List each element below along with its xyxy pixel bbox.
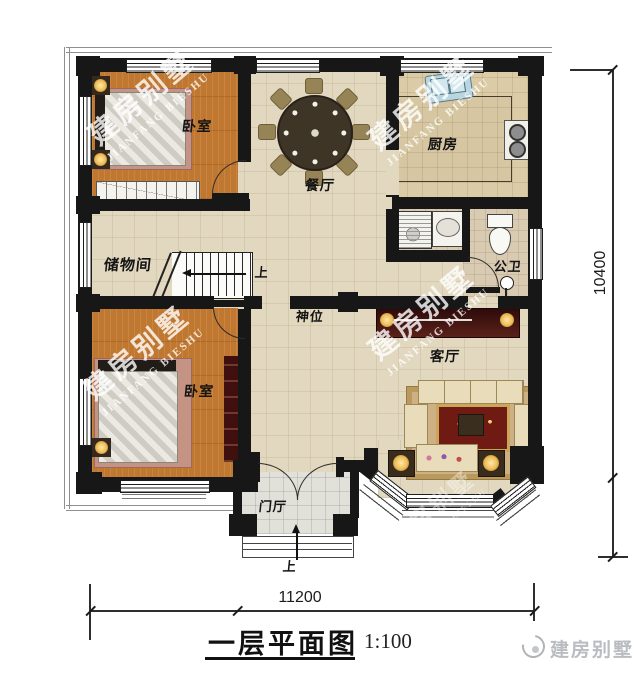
burner-icon <box>509 124 526 141</box>
room-label-dining: 餐厅 <box>304 175 336 195</box>
dimension-line-right <box>612 69 614 557</box>
dining-chair <box>305 78 323 94</box>
eave-line <box>66 47 552 48</box>
stairs-treads <box>186 253 251 296</box>
stairs-arrow-head <box>182 269 191 277</box>
wall <box>498 296 530 309</box>
wall <box>78 296 214 309</box>
room-label-shrine: 神位 <box>295 306 325 325</box>
bed <box>104 92 186 166</box>
floor-plan: 卧室 餐厅 厨房 储物间 上 神位 公卫 客厅 卧室 门厅 上 11200 10… <box>0 0 640 674</box>
window <box>79 96 92 166</box>
bay-window <box>406 494 494 508</box>
door-post <box>250 457 258 477</box>
cabinet-highlight <box>392 319 472 321</box>
sofa-back <box>418 380 524 404</box>
room-label-kitchen: 厨房 <box>427 134 459 154</box>
window <box>79 378 92 446</box>
dimension-right-value: 10400 <box>592 243 610 303</box>
shrine-cabinet <box>376 308 520 338</box>
dining-chair <box>258 124 276 140</box>
dimension-line-bottom <box>89 610 535 612</box>
window <box>529 228 543 280</box>
room-label-foyer: 门厅 <box>258 496 288 515</box>
room-label-storage: 储物间 <box>103 254 153 275</box>
lamp-icon <box>94 79 107 92</box>
wall <box>386 250 470 262</box>
title-underline <box>205 657 355 660</box>
sink-basin <box>430 77 450 96</box>
window-sill <box>122 494 206 495</box>
kitchen-door-opening <box>386 150 399 195</box>
window <box>400 59 484 73</box>
toilet-tank <box>487 214 513 228</box>
wall <box>78 199 250 211</box>
eave-line <box>66 510 242 511</box>
entry-up-label: 上 <box>282 556 298 575</box>
wall <box>244 296 262 309</box>
red-wardrobe <box>224 356 238 462</box>
washing-machine-icon <box>394 211 432 249</box>
sink-basin <box>448 75 466 94</box>
wall <box>436 197 542 209</box>
stairs-up-label: 上 <box>254 262 270 281</box>
floor-drain-icon <box>500 276 514 290</box>
window <box>79 222 92 288</box>
coffee-table <box>458 414 484 436</box>
lamp-icon <box>95 441 108 454</box>
room-label-bedroom-bottom: 卧室 <box>183 381 215 401</box>
dimension-ext-line <box>570 69 614 71</box>
scale-label: 1:100 <box>364 629 412 654</box>
eave-line <box>64 47 65 509</box>
cabinet-lamp-icon <box>500 313 514 327</box>
room-label-bathroom: 公卫 <box>493 256 523 275</box>
brand-logo-text: 建房别墅 <box>550 635 634 662</box>
window <box>120 480 210 493</box>
door-leaf <box>212 193 249 200</box>
stairs-arrow-line <box>190 273 246 275</box>
porch-pillar <box>333 514 358 536</box>
porch-wall <box>350 468 359 518</box>
basin-oval <box>436 218 460 237</box>
lamp-icon <box>393 455 409 471</box>
door-leaf <box>214 300 244 307</box>
wall <box>238 58 251 162</box>
sofa-left <box>404 404 428 448</box>
eave-line <box>66 505 242 506</box>
bay-steps <box>402 510 494 519</box>
porch-wall <box>233 468 242 518</box>
wall-pillar <box>338 292 358 312</box>
porch-pillar <box>229 514 257 536</box>
window <box>126 59 212 73</box>
exterior-patch <box>542 440 562 520</box>
lamp-icon <box>94 153 107 166</box>
dining-chair <box>352 124 370 140</box>
room-label-living: 客厅 <box>429 346 461 366</box>
cabinet-lamp-icon <box>380 313 394 327</box>
door-post <box>336 457 344 477</box>
dimension-ext-line <box>533 583 535 621</box>
wall <box>392 197 436 209</box>
floor-drain-stem <box>505 288 507 296</box>
window-sill <box>122 498 206 499</box>
lamp-icon <box>483 455 499 471</box>
entry-arrow-head <box>292 524 300 533</box>
room-label-bedroom-top: 卧室 <box>181 116 213 136</box>
dimension-bottom-value: 11200 <box>270 589 330 607</box>
eave-line <box>69 47 70 509</box>
sofa-front <box>416 444 478 472</box>
eave-line <box>66 52 552 53</box>
plan-title: 一层平面图 <box>208 622 358 661</box>
bed-headboard <box>98 360 176 371</box>
burner-icon <box>509 141 526 158</box>
porch-steps <box>242 536 354 558</box>
brand-logo-dot <box>532 646 539 653</box>
dining-table <box>277 95 353 171</box>
window <box>256 59 320 73</box>
